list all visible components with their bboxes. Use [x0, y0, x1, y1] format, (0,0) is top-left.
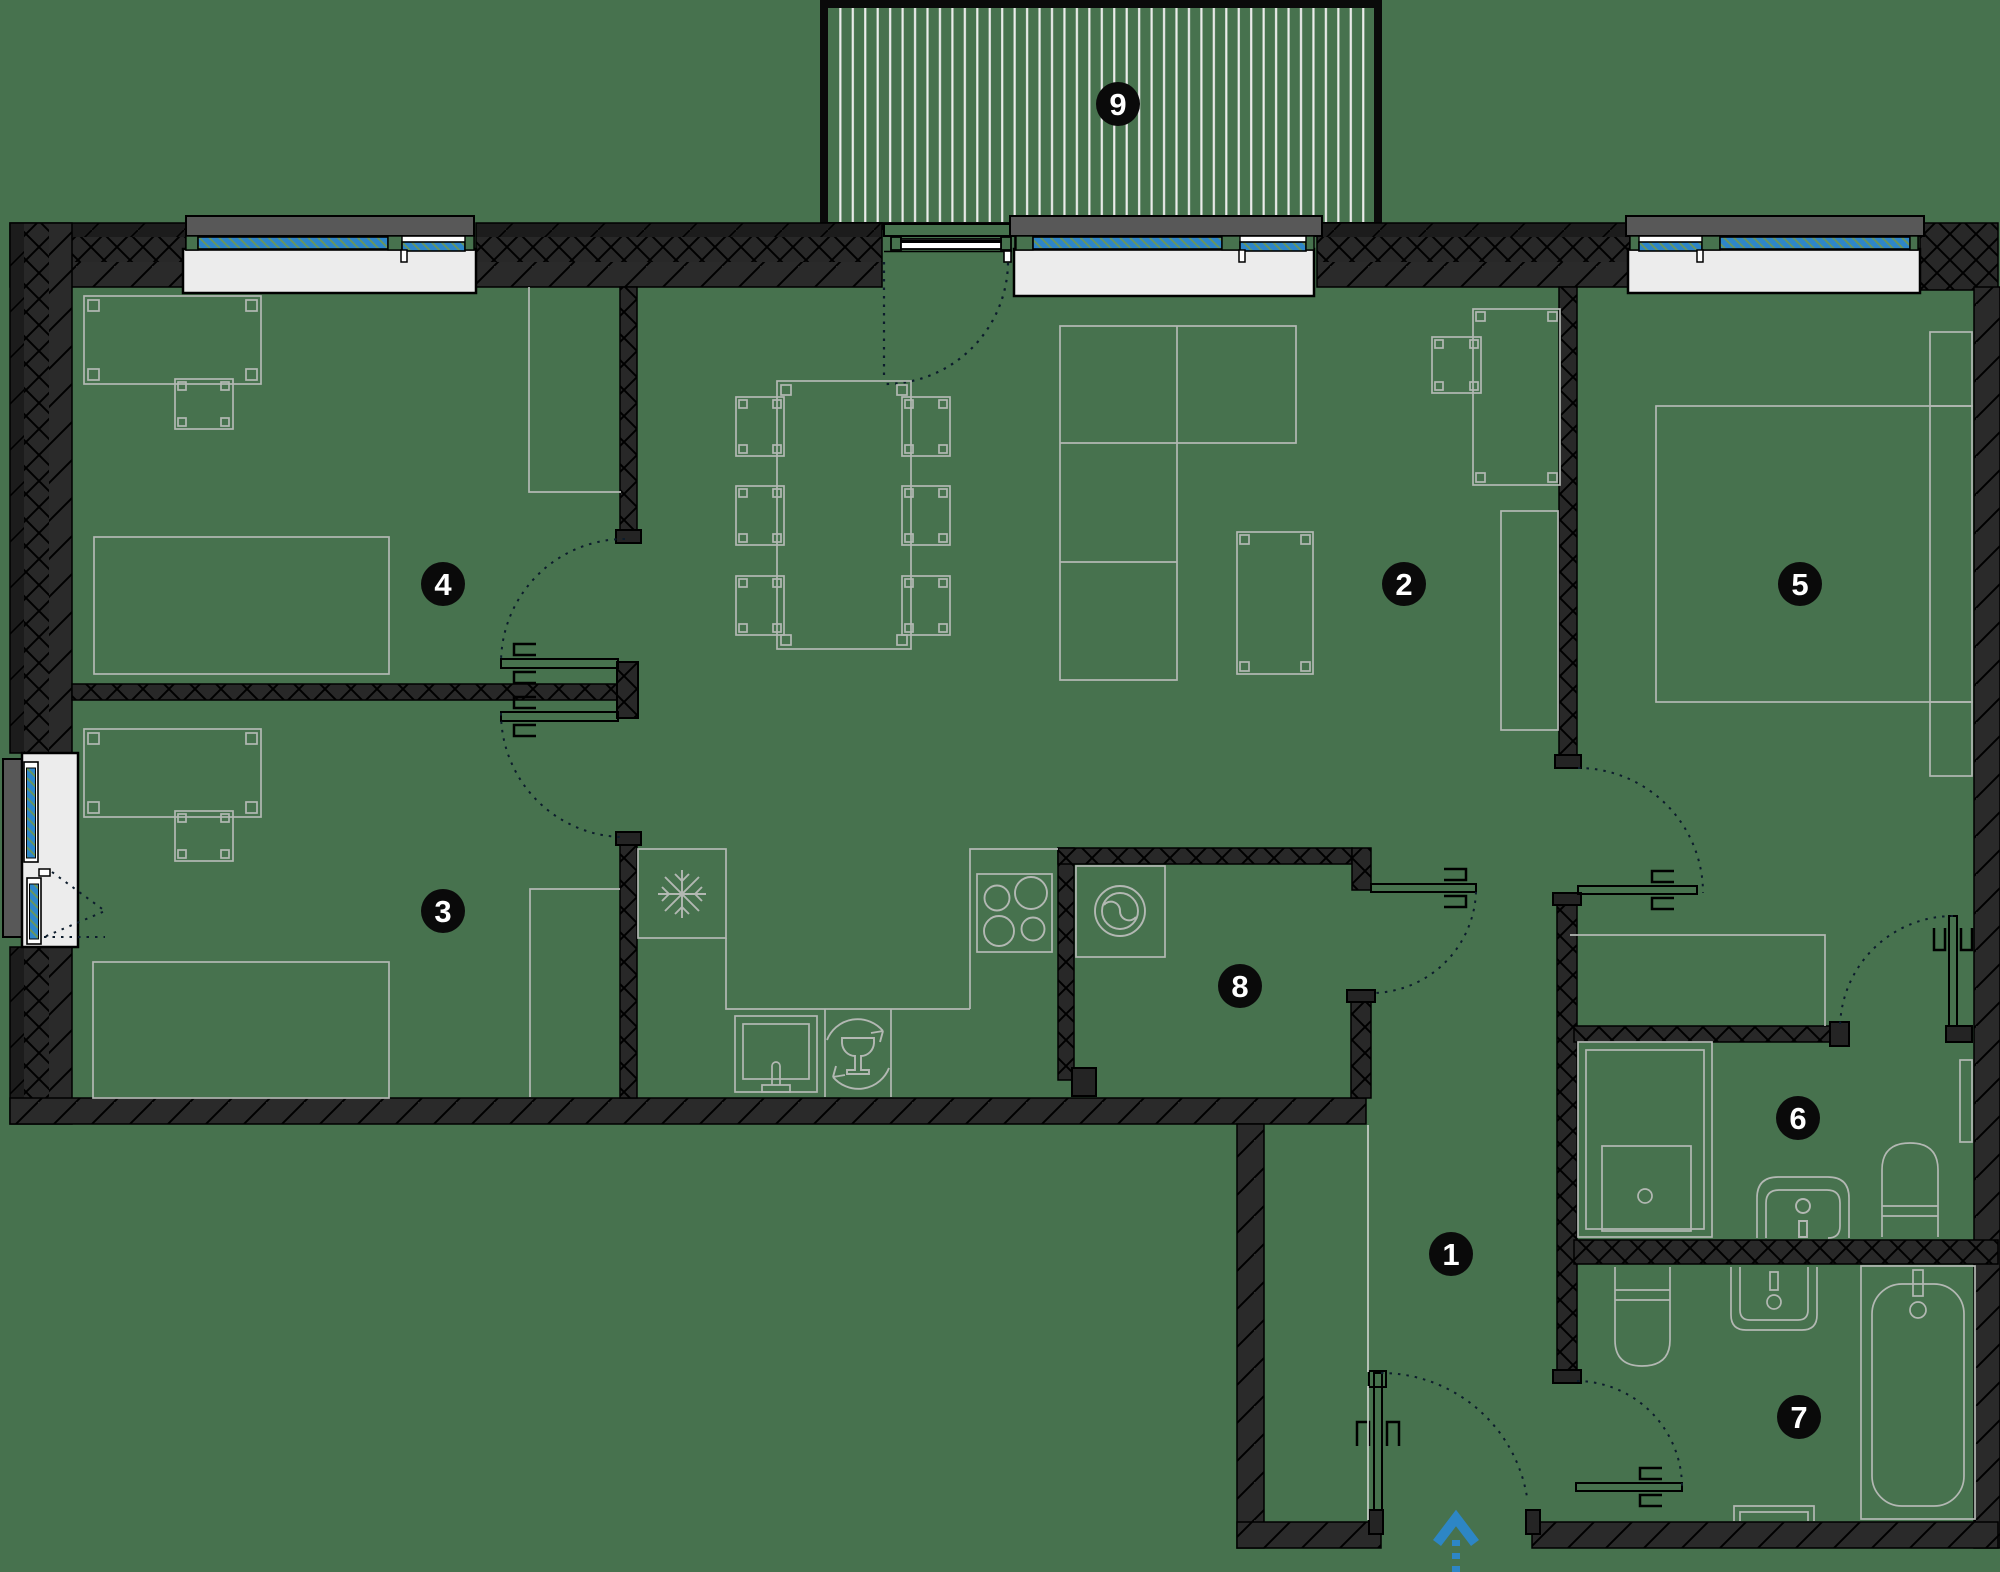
- svg-text:9: 9: [1109, 87, 1126, 122]
- svg-text:8: 8: [1231, 969, 1248, 1004]
- svg-text:4: 4: [434, 567, 452, 602]
- svg-text:6: 6: [1789, 1101, 1806, 1136]
- svg-text:5: 5: [1791, 567, 1808, 602]
- svg-text:7: 7: [1790, 1400, 1807, 1435]
- svg-text:3: 3: [434, 894, 451, 929]
- svg-text:2: 2: [1395, 567, 1412, 602]
- svg-text:1: 1: [1442, 1237, 1459, 1272]
